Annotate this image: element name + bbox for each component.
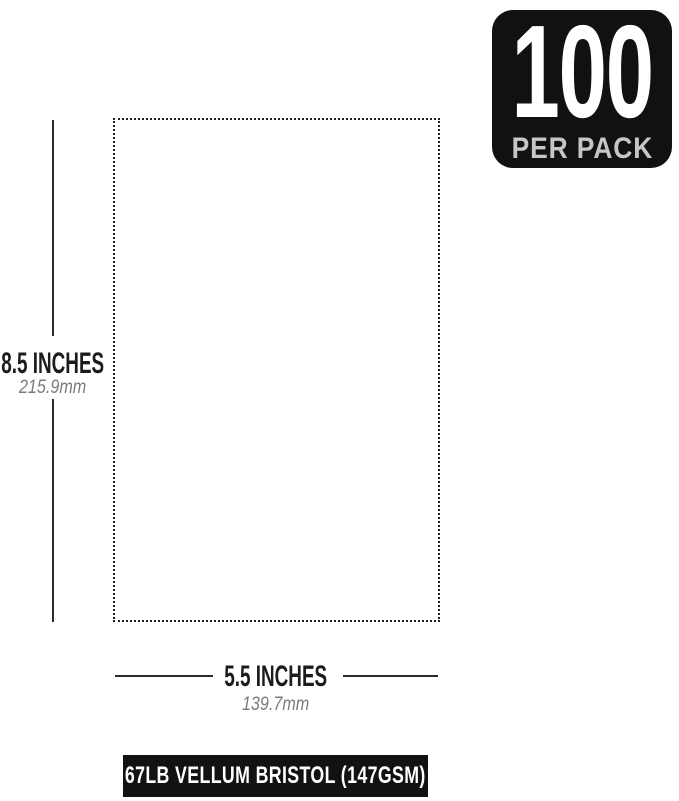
badge-label: PER PACK (511, 134, 653, 164)
footer-label: 67LB VELLUM BRISTOL (147GSM) (125, 764, 426, 788)
per-pack-badge: 100 PER PACK (492, 10, 672, 168)
height-metric-wrap: 215.9mm (0, 378, 163, 398)
width-metric-wrap: 139.7mm (166, 695, 386, 715)
height-label-wrap: 8.5 INCHES (0, 349, 163, 379)
height-dimension-line-top (52, 120, 54, 336)
height-dimension-line-bottom (52, 399, 54, 622)
height-label: 8.5 INCHES (2, 349, 105, 379)
footer-bar: 67LB VELLUM BRISTOL (147GSM) (123, 755, 428, 797)
height-metric-label: 215.9mm (19, 378, 86, 397)
width-label-wrap: 5.5 INCHES (166, 662, 386, 692)
width-metric-label: 139.7mm (242, 695, 309, 714)
badge-count: 100 (511, 14, 652, 130)
product-dimension-diagram: 100 PER PACK 8.5 INCHES 215.9mm 5.5 INCH… (0, 0, 679, 801)
width-label: 5.5 INCHES (225, 662, 328, 692)
